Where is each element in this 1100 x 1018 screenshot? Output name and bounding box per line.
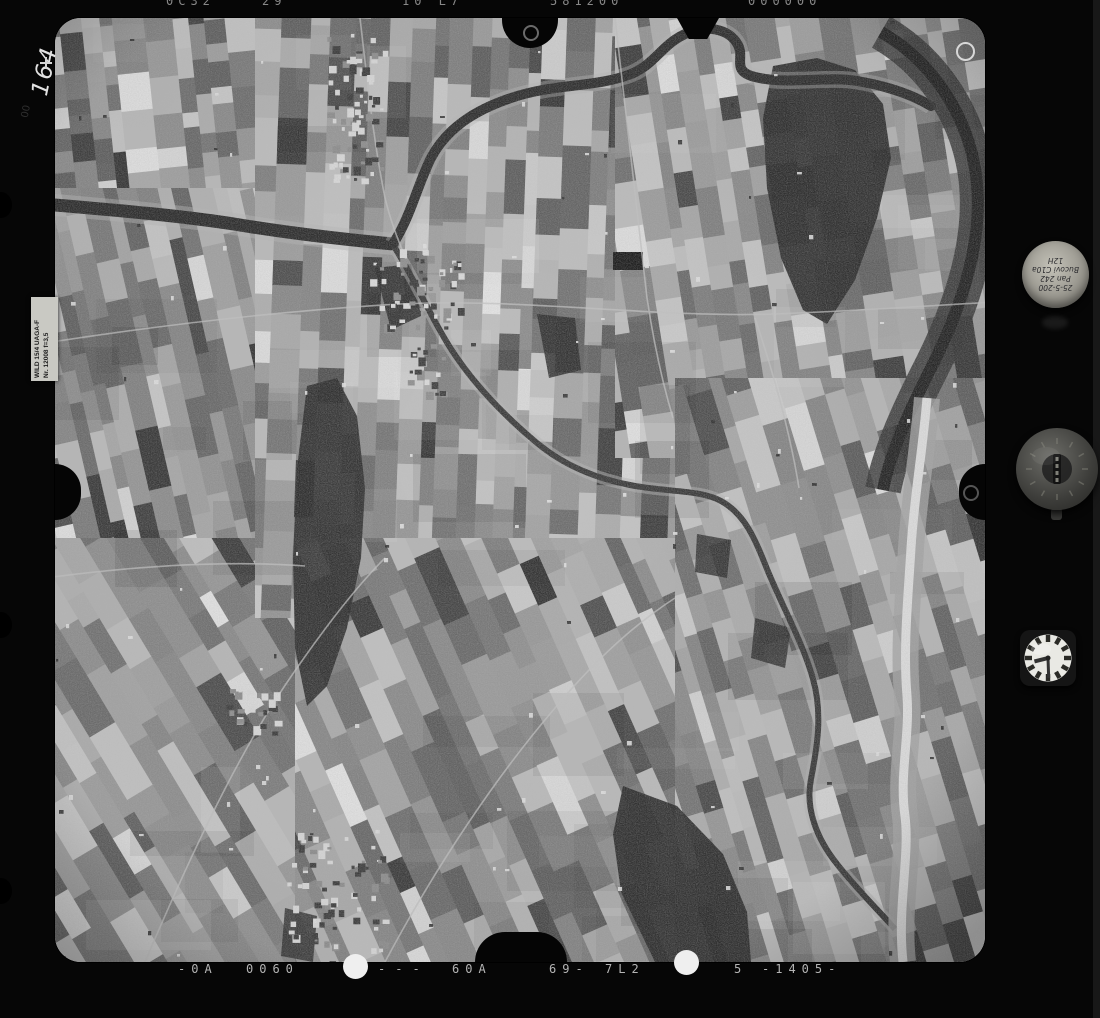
clock-face	[1020, 630, 1076, 686]
bottom-data-segment: -1405-	[762, 962, 841, 976]
bottom-data-segment: 60A	[452, 962, 492, 976]
annotation-disc-text: 25-5-200 Pan 242 Bucovi C10a 12H	[1022, 241, 1089, 308]
top-data-segment: 000000	[748, 0, 821, 8]
top-data-segment: 29	[262, 0, 286, 8]
bottom-data-segment: 5	[734, 962, 747, 976]
top-data-segment: 10 L7	[402, 0, 463, 8]
film-edge-bump	[0, 192, 12, 218]
camera-label-line1: WILD 15/4 UAGA-F	[33, 300, 42, 378]
faint-mark: 00	[20, 104, 33, 119]
disc-line: 12H	[1048, 257, 1063, 266]
bottom-data-segment: 0060	[246, 962, 299, 976]
aerial-photo	[55, 18, 985, 962]
bottom-data-segment: ---	[378, 962, 430, 976]
camera-label: WILD 15/4 UAGA-F Nr. 12008 f=3,5	[31, 297, 58, 381]
bottom-data-segment: 7L2	[605, 962, 645, 976]
disc-line: 25-5-200	[1038, 284, 1072, 293]
disc-line: Pan 242	[1040, 275, 1071, 284]
film-edge-bump	[0, 878, 12, 904]
field-mosaic	[55, 18, 985, 962]
fiducial-ring-icon	[956, 42, 975, 61]
altimeter-dial	[1016, 428, 1098, 510]
top-data-segment: 0C32	[166, 0, 215, 8]
fiducial-dot-icon	[343, 954, 368, 979]
fiducial-notch-bottom	[475, 932, 567, 962]
altimeter-face	[1016, 428, 1098, 510]
fiducial-dot-icon	[674, 950, 699, 975]
smudge-mark	[1042, 316, 1068, 329]
fiducial-ring-icon	[963, 485, 979, 501]
top-data-segment: 581200	[550, 0, 623, 8]
disc-line: Bucovi C10a	[1032, 266, 1079, 275]
film-edge-bump	[0, 612, 12, 638]
bottom-data-segment: -0A	[178, 962, 218, 976]
film-frame: 0C32 29 10 L7 581200 000000 -0A 0060 ---…	[0, 0, 1100, 1018]
camera-label-line2: Nr. 12008 f=3,5	[42, 300, 51, 378]
fiducial-cross-icon	[45, 57, 47, 69]
fiducial-ring-icon	[523, 25, 539, 41]
bottom-data-segment: 69-	[549, 962, 589, 976]
clock	[1020, 630, 1076, 686]
annotation-disc: 25-5-200 Pan 242 Bucovi C10a 12H	[1022, 241, 1089, 308]
